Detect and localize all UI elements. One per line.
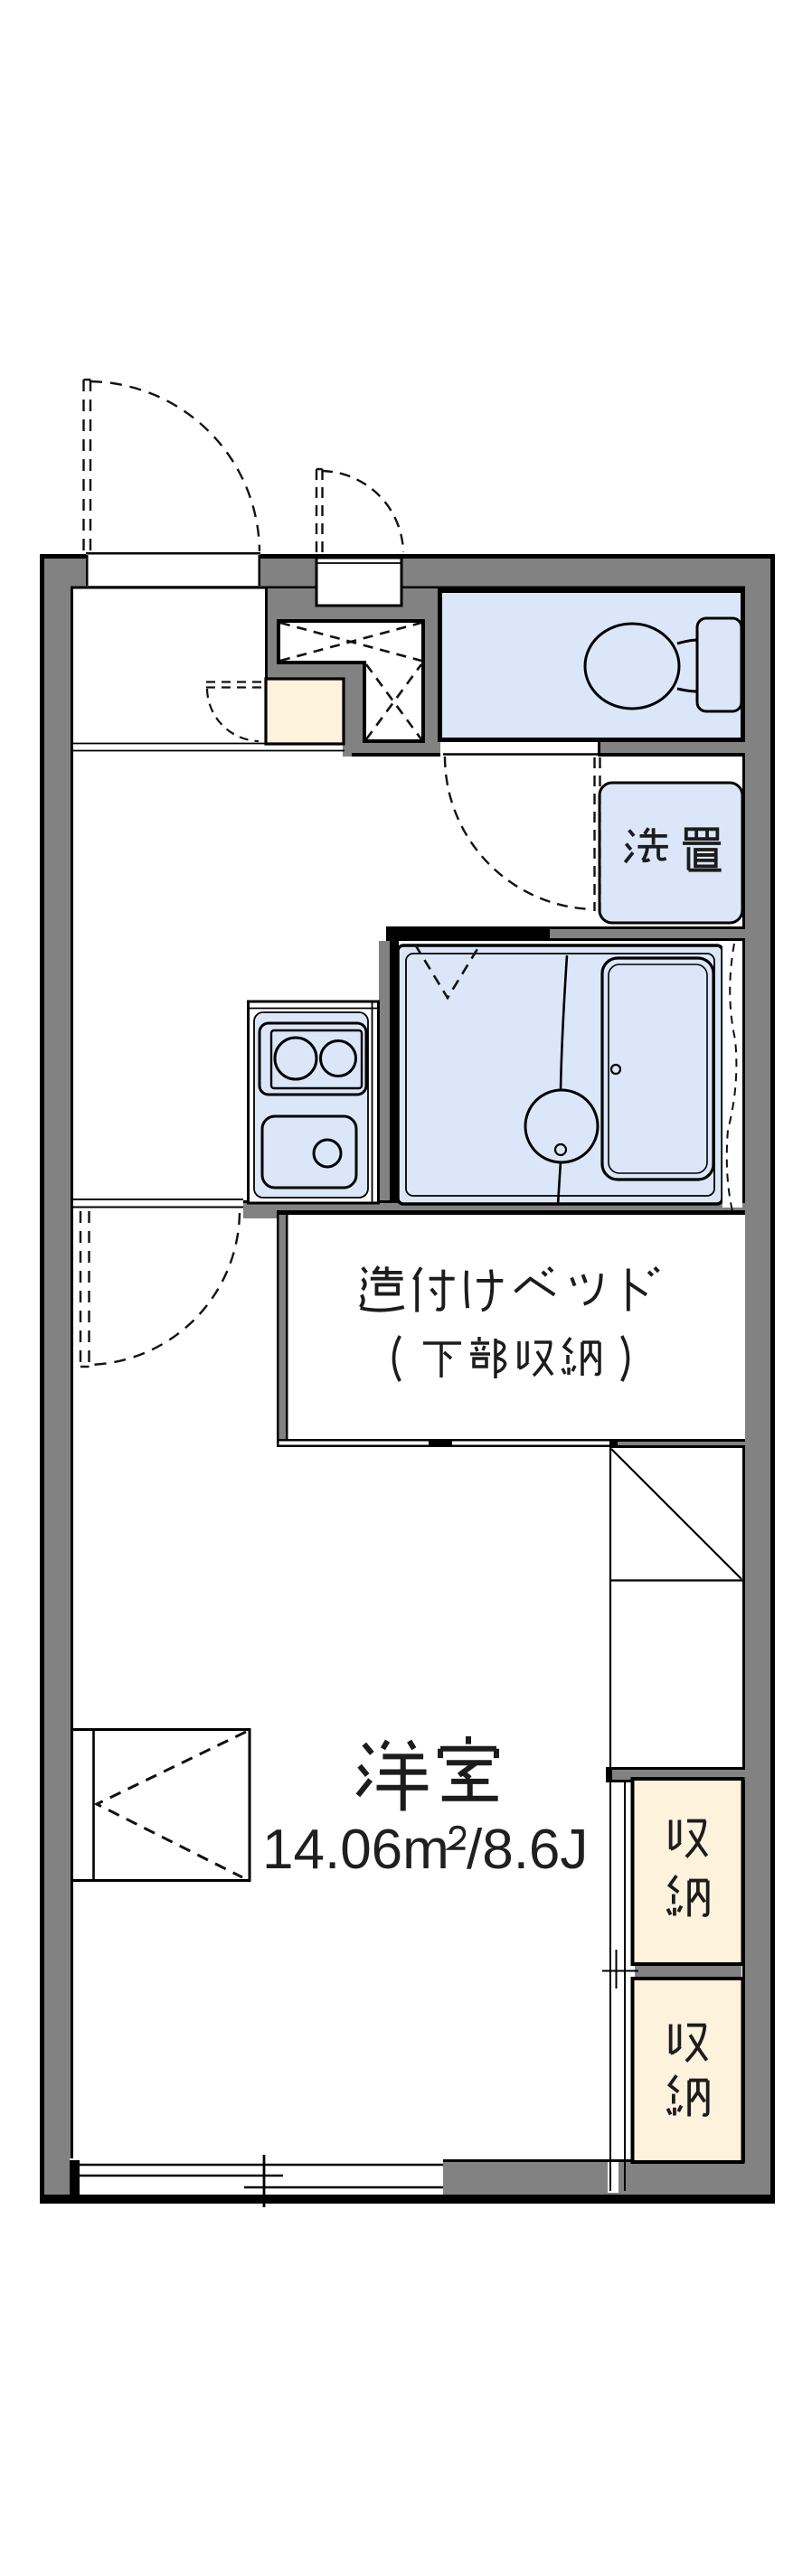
svg-text:14.06m: 14.06m <box>262 1819 449 1881</box>
svg-text:/8.6J: /8.6J <box>467 1819 588 1881</box>
